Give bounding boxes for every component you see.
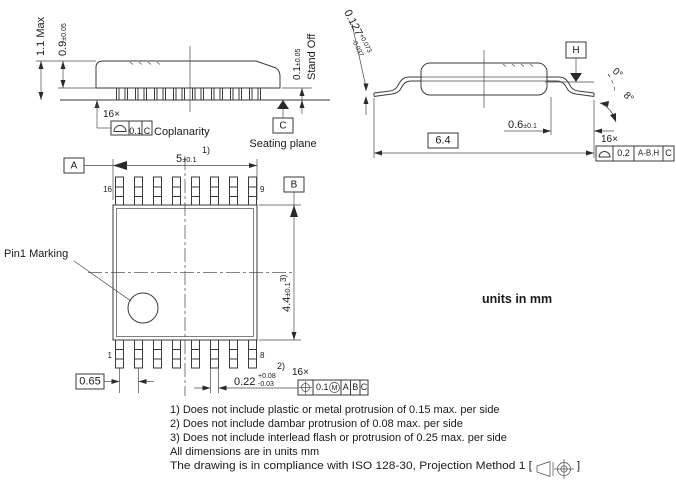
foot-length-dimension: 0.6±0.1	[504, 97, 614, 135]
profile-tolerance: 0.2	[617, 148, 630, 158]
position-datum-c: C	[361, 382, 368, 392]
dim-height-max: 1.1 Max	[35, 16, 47, 56]
dim-lead-thickness: 0.127+0.073-0.037	[337, 8, 374, 58]
datum-c-label: C	[279, 121, 286, 132]
end-view: 0.127+0.073-0.037 H 0° 8°	[337, 8, 674, 161]
dim-lead-width-plus: +0.08	[258, 373, 276, 380]
angle-min-label: 0°	[610, 66, 624, 81]
lead-count-label: 16×	[601, 134, 618, 145]
lead-count-label: 16×	[292, 367, 309, 378]
dim-width: 5±0.1	[176, 153, 197, 165]
notes: 1) Does not include plastic or metal pro…	[170, 404, 580, 479]
dim-pitch: 0.65	[79, 375, 100, 387]
pin1-marking-circle	[128, 293, 158, 323]
position-tolerance: 0.1	[316, 382, 329, 392]
side-view: 1.1 Max 0.9±0.05 0.1±0.05 Stand Off	[35, 16, 330, 150]
position-datum-a: A	[343, 382, 349, 392]
position-symbol-icon	[299, 381, 312, 394]
mold-marks	[130, 62, 160, 65]
datum-triangle-icon	[570, 73, 582, 82]
pin-1-label: 1	[108, 351, 113, 360]
package-outline-drawing: 1.1 Max 0.9±0.05 0.1±0.05 Stand Off	[0, 0, 676, 480]
note-5: The drawing is in compliance with ISO 12…	[170, 460, 532, 472]
lead-width-dimension: 0.22 +0.08 -0.03 2) 16× 0.1 M A B C	[194, 361, 368, 395]
angle-max-label: 8°	[621, 90, 635, 105]
datum-h-label: H	[572, 45, 579, 56]
dim-standoff: 0.1±0.05	[292, 49, 303, 80]
note-3: 3) Does not include interlead flash or p…	[170, 432, 507, 444]
m-modifier-icon: M	[330, 383, 340, 393]
pin-8-label: 8	[260, 351, 265, 360]
pin-16-label: 16	[103, 185, 112, 194]
profile-symbol-icon	[599, 152, 610, 158]
standoff-dimension: 0.1±0.05 Stand Off	[282, 33, 318, 114]
profile-fcf-frame	[596, 146, 674, 161]
lead-angle: 0° 8°	[600, 66, 635, 122]
dimension-arrows	[39, 61, 66, 100]
lead-thickness-dimension: 0.127+0.073-0.037	[337, 8, 374, 115]
pin1-marking-label: Pin1 Marking	[4, 248, 68, 260]
profile-symbol-icon	[114, 126, 126, 132]
profile-datums-primary: A-B,H	[638, 149, 660, 158]
position-datum-b: B	[352, 382, 358, 392]
top-leads	[116, 177, 257, 205]
dim-width-note: 1)	[202, 145, 210, 155]
standoff-label: Stand Off	[306, 33, 318, 80]
dim-foot-length: 0.6±0.1	[508, 119, 537, 131]
datum-a-label: A	[71, 161, 78, 172]
package-body-side	[96, 61, 280, 88]
coplanarity-datum: C	[144, 126, 151, 136]
note-2: 2) Does not include dambar protrusion of…	[170, 418, 463, 430]
dim-lead-width: 0.22	[234, 376, 255, 388]
profile-fcf: 16× 0.2 A-B,H C	[596, 134, 674, 161]
note-4: All dimensions are in units mm	[170, 446, 319, 458]
seating-datum: C Seating plane	[249, 100, 316, 150]
bottom-leads	[116, 340, 257, 368]
profile-datum-secondary: C	[665, 148, 672, 158]
units-label: units in mm	[482, 292, 552, 306]
side-view-leads	[117, 88, 261, 100]
dim-lead-width-minus: -0.03	[258, 381, 274, 388]
projection-symbol-icon	[537, 459, 574, 479]
note-1: 1) Does not include plastic or metal pro…	[170, 404, 500, 416]
m-modifier-letter: M	[332, 385, 338, 392]
mold-marks	[503, 64, 533, 67]
coplanarity-callout: 16× 0.1 C Coplanarity	[95, 100, 211, 138]
coplanarity-label: Coplanarity	[154, 126, 210, 138]
dim-span: 6.4	[435, 134, 450, 146]
seating-plane-label: Seating plane	[249, 138, 316, 150]
width-dimension: A 5±0.1 1)	[64, 145, 257, 200]
pin-9-label: 9	[260, 185, 265, 194]
dim-length: 4.4±0.13)	[278, 274, 293, 312]
pitch-dimension: 0.65	[76, 368, 154, 393]
lead-count-label: 16×	[103, 109, 120, 120]
height-dimension: 1.1 Max 0.9±0.05	[35, 16, 96, 100]
coplanarity-tolerance: 0.1	[129, 126, 142, 136]
top-view: 16 9 1 8 Pin1 Marking A 5±0.1 1) B	[4, 145, 368, 396]
pin1-leader	[74, 261, 131, 301]
note-5-close: ]	[577, 460, 580, 472]
datum-b-label: B	[291, 180, 298, 191]
length-dimension: B 4.4±0.13)	[259, 177, 304, 340]
datum-h: H	[545, 42, 594, 82]
dim-lead-width-note: 2)	[277, 361, 285, 371]
drawing-canvas: 1.1 Max 0.9±0.05 0.1±0.05 Stand Off	[0, 0, 676, 480]
dim-body-thickness: 0.9±0.05	[57, 23, 69, 56]
datum-triangle-icon	[277, 100, 289, 109]
